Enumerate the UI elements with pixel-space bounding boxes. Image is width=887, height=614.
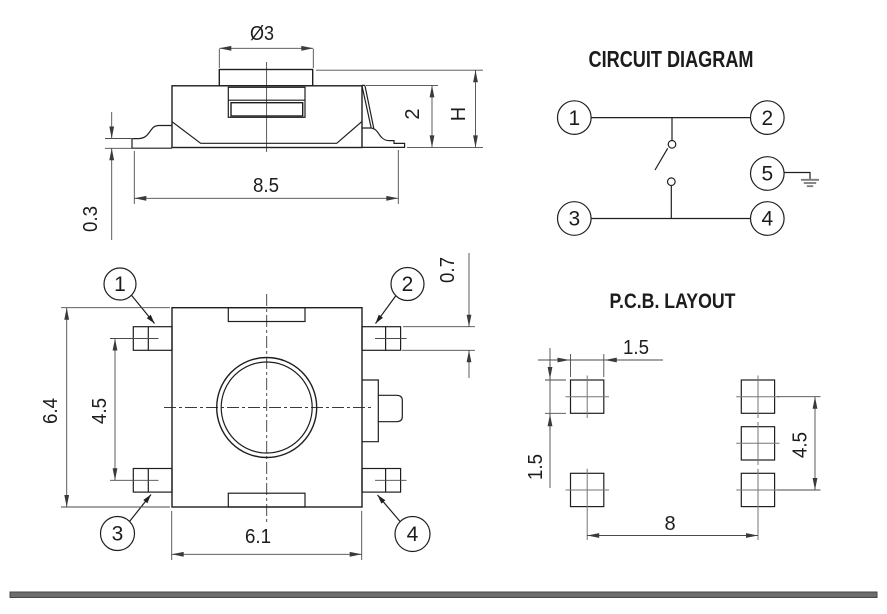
dim-label-total-height: H — [448, 107, 470, 121]
callout-leader-2 — [376, 296, 397, 324]
circuit-diagram: CIRCUIT DIAGRAM 1 2 3 4 5 — [558, 46, 820, 235]
switch-symbol — [655, 141, 676, 186]
terminal-label-1: 1 — [568, 107, 580, 130]
technical-drawing-canvas: Ø3 2 H 0.3 8.5 — [0, 0, 887, 614]
lead-top-right — [362, 327, 407, 351]
callout-label-2: 2 — [402, 273, 414, 296]
dim-label-pad-height: 1.5 — [525, 454, 547, 480]
lead-bottom-right — [362, 469, 407, 493]
dim-label-col-pitch: 8 — [664, 513, 675, 535]
switch-contact-upper — [668, 141, 676, 149]
top-view: 1 2 3 4 6.4 4.5 — [40, 253, 475, 560]
side-view: Ø3 2 H 0.3 8.5 — [80, 23, 483, 240]
dim-label-overall-width: 6.4 — [40, 398, 62, 424]
top-view-dimensions: 6.4 4.5 6.1 0.7 — [40, 253, 475, 560]
pin-callout-4: 4 — [378, 495, 431, 552]
terminal-label-4: 4 — [761, 208, 773, 231]
tact-switch-datasheet-drawing: Ø3 2 H 0.3 8.5 — [0, 0, 887, 614]
terminal-label-2: 2 — [761, 107, 773, 130]
pcb-layout-title: P.C.B. LAYOUT — [610, 290, 736, 313]
dim-label-lead-thickness: 0.3 — [80, 206, 102, 232]
terminal-label-3: 3 — [568, 208, 580, 231]
dim-label-button-diameter: Ø3 — [250, 23, 274, 45]
gull-wing-lead-left — [132, 126, 172, 149]
switch-contact-lower — [668, 178, 676, 186]
dim-label-body-width-top: 6.1 — [245, 526, 271, 548]
side-view-dimensions: Ø3 2 H 0.3 8.5 — [80, 23, 483, 240]
callout-leader-3 — [130, 495, 152, 522]
pin-callout-1: 1 — [104, 268, 155, 324]
callout-label-3: 3 — [112, 523, 124, 546]
pcb-layout: P.C.B. LAYOUT 1.5 1. — [525, 290, 821, 540]
dim-label-body-width-side: 8.5 — [253, 175, 279, 197]
dim-label-body-height: 2 — [402, 108, 424, 119]
lead-5-side-bump — [362, 380, 402, 442]
side-lead-5-bent — [362, 85, 374, 128]
dim-label-row-pitch: 4.5 — [790, 432, 812, 458]
button-stem-side — [219, 70, 312, 86]
circuit-diagram-title: CIRCUIT DIAGRAM — [589, 46, 754, 72]
pin-callout-2: 2 — [376, 268, 425, 324]
callout-label-4: 4 — [407, 523, 419, 546]
terminal-label-5: 5 — [761, 163, 773, 186]
circuit-wires — [591, 118, 750, 219]
dim-label-lead-width: 0.7 — [437, 257, 459, 283]
callout-leader-4 — [378, 495, 401, 522]
dim-label-lead-pitch: 4.5 — [89, 398, 111, 424]
callout-label-1: 1 — [114, 273, 126, 296]
switch-actuator-arm — [655, 148, 668, 170]
ground-symbol — [784, 173, 819, 187]
bottom-divider-bar — [10, 592, 877, 598]
pcb-dimensions: 1.5 1.5 4.5 8 — [525, 337, 821, 536]
gull-wing-lead-right — [362, 128, 405, 147]
dim-label-pad-width: 1.5 — [623, 337, 649, 359]
callout-leader-1 — [132, 295, 155, 323]
pin-callout-3: 3 — [101, 495, 152, 551]
